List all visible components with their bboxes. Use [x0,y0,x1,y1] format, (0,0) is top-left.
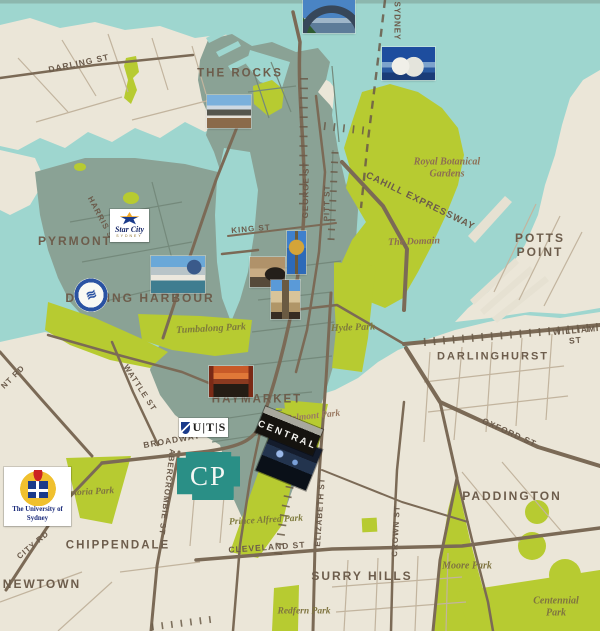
label-chippendale: CHIPPENDALE [66,539,170,552]
label-redfern-park: Redfern Park [277,607,330,618]
label-george-st: GEORGE ST [301,162,311,219]
label-newtown: NEWTOWN [3,578,81,592]
map-top-edge [0,0,600,4]
label-royal-botanical-gardens: Royal Botanical Gardens [414,157,480,180]
label-sydney-tunnel: SYDNEY [392,2,401,41]
label-the-rocks: THE ROCKS [197,67,283,80]
label-darlinghurst: DARLINGHURST [437,351,549,364]
label-pitt-st: PITT ST [322,185,332,222]
label-hyde-park: Hyde Park [331,321,376,334]
label-moore-park: Moore Park [442,560,492,572]
label-surry-hills: SURRY HILLS [311,570,412,584]
base-map [0,0,600,631]
label-pyrmont: PYRMONT [38,235,112,249]
label-potts-point: POTTS POINT [510,232,570,260]
label-the-domain: The Domain [388,235,440,248]
label-paddington: PADDINGTON [462,490,562,504]
label-darling-harbour: DARLING HARBOUR [65,292,214,306]
sydney-map: THE ROCKSPYRMONTDARLING HARBOURPOTTS POI… [0,0,600,631]
label-centennial-park: Centennial Park [533,596,579,619]
label-william-st: WILLIAM ST [553,324,598,347]
label-haymarket: HAYMARKET [212,393,302,406]
